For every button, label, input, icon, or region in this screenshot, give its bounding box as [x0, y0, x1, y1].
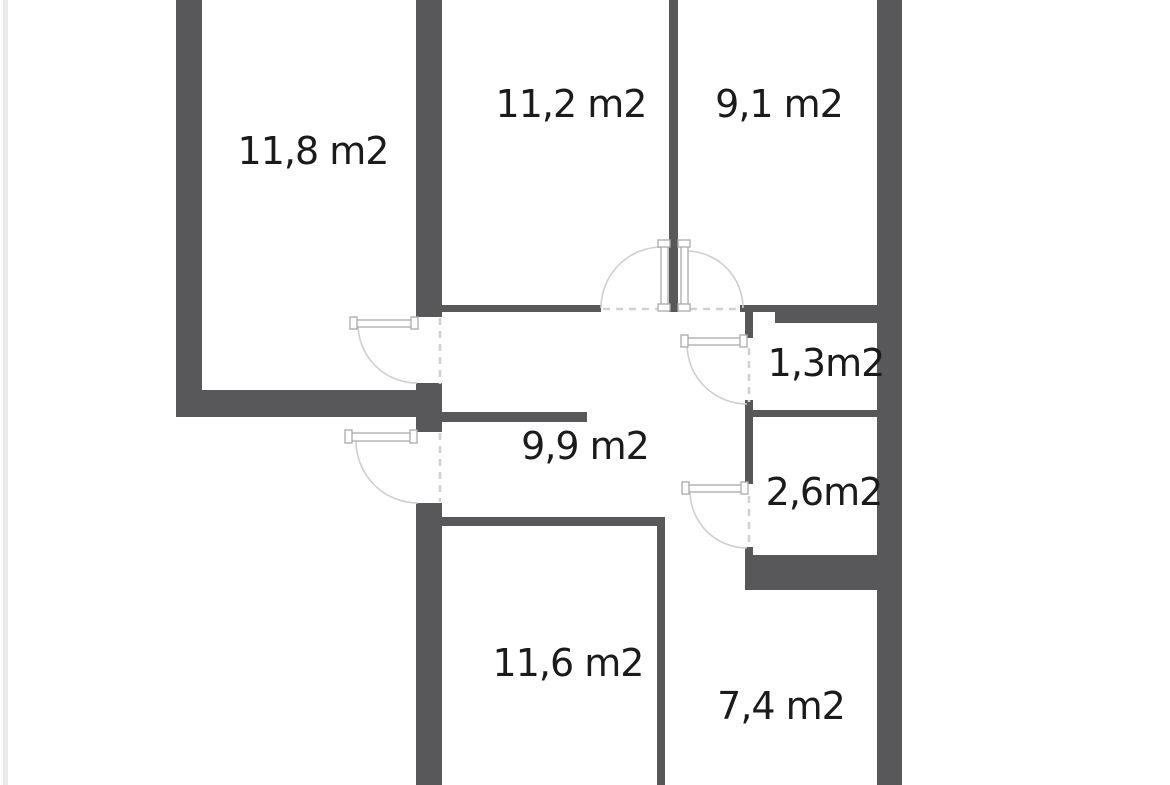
arc-wc-door: [690, 491, 747, 548]
room-label-closet: 1,3m2: [768, 344, 885, 382]
wall-closet-wc-divider: [752, 410, 877, 417]
door-panel-room-tm: [658, 240, 670, 311]
wall-center-spine-upper: [416, 0, 442, 317]
wall-hall-top-right: [740, 305, 778, 312]
wall-right-outer: [877, 0, 902, 785]
door-panel-room-tl: [350, 317, 418, 329]
wall-wc-spine-a: [745, 312, 753, 338]
wall-hall-top-left: [442, 305, 601, 312]
door-panel-closet: [681, 335, 747, 347]
wall-room-bm-top: [442, 517, 665, 526]
room-label-top-left: 11,8 m2: [238, 132, 389, 170]
arc-room-tm-door: [601, 247, 662, 308]
arc-entrance-door: [356, 441, 418, 503]
wall-left-outer: [176, 0, 202, 417]
wall-wc-spine-b: [745, 400, 753, 484]
wall-hall-stub: [442, 412, 587, 422]
arc-room-tr-door: [686, 251, 743, 308]
wall-room-bm-right: [657, 517, 665, 785]
room-label-bottom-right: 7,4 m2: [717, 687, 845, 725]
room-label-bottom-middle: 11,6 m2: [493, 644, 644, 682]
wall-wc-bottom: [745, 555, 877, 590]
arc-room-tl-door: [358, 324, 417, 383]
room-label-top-right: 9,1 m2: [715, 85, 843, 123]
door-panel-room-tr: [678, 240, 690, 311]
wall-room-tl-bottom: [176, 390, 442, 417]
wall-center-spine-lower: [416, 503, 442, 785]
door-panel-entrance: [345, 430, 417, 443]
door-panel-wc: [682, 482, 748, 494]
floor-plan: 11,8 m211,2 m29,1 m21,3m29,9 m22,6m211,6…: [0, 0, 1170, 785]
room-label-hallway: 9,9 m2: [521, 427, 649, 465]
arc-closet-door: [687, 344, 747, 404]
room-label-wc: 2,6m2: [766, 473, 883, 511]
wall-closet-top: [775, 305, 877, 323]
wall-bedroom-divider: [669, 0, 678, 312]
room-label-top-middle: 11,2 m2: [496, 85, 647, 123]
